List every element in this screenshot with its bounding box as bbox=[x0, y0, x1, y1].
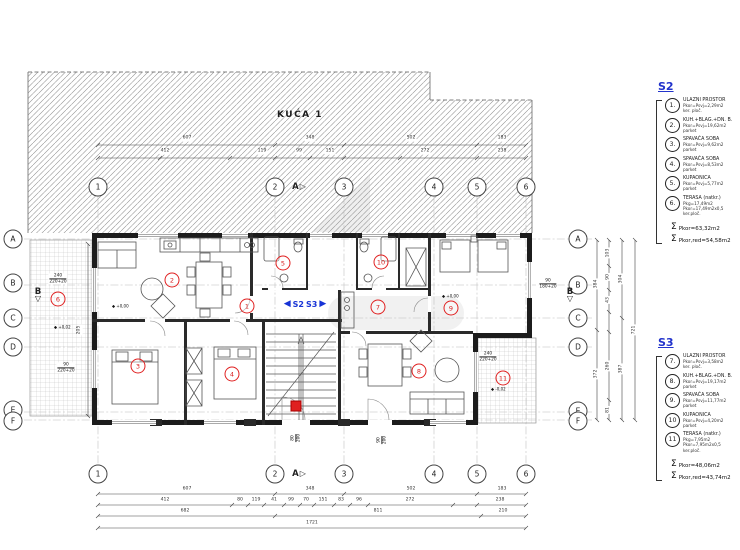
legend-item-number: 7. bbox=[665, 354, 680, 369]
legend-s3: S3 7. ULAZNI PROSTOR Pkor=Psvj=3,58m2 ke… bbox=[656, 336, 740, 484]
door-spec: 90 200 bbox=[376, 435, 387, 445]
legend-item-text: ULAZNI PROSTOR Pkor=Psvj=2,29m2 ker. plo… bbox=[683, 98, 725, 114]
legend-s3-body: 7. ULAZNI PROSTOR Pkor=Psvj=3,58m2 ker. … bbox=[656, 354, 740, 481]
dim-label: 384 bbox=[595, 279, 600, 290]
sigma-icon: Σ bbox=[671, 460, 677, 469]
room-bubble-5: 5 bbox=[276, 256, 291, 271]
dim-label: 607 bbox=[182, 137, 193, 142]
legend-item: 11 TERASA (natkr.) Pkg=7,95m2 Pkor=7,95m… bbox=[665, 432, 740, 453]
legend-room-floor: parket bbox=[683, 186, 723, 191]
legend-room-name: KUH.+BLAG.+DN. B. bbox=[683, 118, 732, 123]
dim-label: 43 bbox=[607, 296, 612, 304]
door-spec: 80 200 bbox=[290, 433, 301, 443]
dim-label: 119 bbox=[257, 150, 268, 155]
legend-sum-value: Pkor,red=43,74m2 bbox=[679, 475, 731, 481]
dim-label: 412 bbox=[160, 499, 171, 504]
legend-item-number: 10 bbox=[665, 413, 680, 428]
level-value: +0,02 bbox=[58, 325, 70, 330]
level-marker: ◆ +0,00 bbox=[112, 304, 129, 309]
legend-room-area: Pkor=Psvj=4,20m2 bbox=[683, 418, 723, 423]
section-arrow-icon: ▷ bbox=[300, 470, 306, 478]
level-marker: ◆ -0,02 bbox=[491, 387, 506, 392]
legend-item: 9. SPAVAĆA SOBA Pkor=Psvj=11,77m2 parket bbox=[665, 393, 740, 409]
legend-item-text: KUPAONICA Pkor=Psvj=4,20m2 parket bbox=[683, 413, 723, 429]
dim-label: 90 bbox=[607, 273, 612, 281]
legend-item: 2. KUH.+BLAG.+DN. B. Pkor=Psvj=19,62m2 p… bbox=[665, 118, 740, 134]
room-bubble-3: 3 bbox=[131, 359, 146, 374]
room-bubble-11: 11 bbox=[496, 371, 511, 386]
dim-label: 348 bbox=[305, 137, 316, 142]
dim-label: 412 bbox=[160, 150, 171, 155]
legend-item: 10 KUPAONICA Pkor=Psvj=4,20m2 parket bbox=[665, 413, 740, 429]
legend-item-text: KUH.+BLAG.+DN. B. Pkor=Psvj=19,17m2 park… bbox=[683, 374, 732, 390]
legend-sum-value: Pkor=63,32m2 bbox=[679, 226, 720, 232]
dim-label: 183 bbox=[497, 137, 508, 142]
legend-item-number: 5. bbox=[665, 176, 680, 191]
arrow-left-icon: ◀ bbox=[284, 299, 291, 309]
grid-col-4-bottom: 4 bbox=[425, 465, 444, 484]
grid-row-d-right: D bbox=[569, 338, 588, 357]
grid-row-f-left: F bbox=[4, 412, 23, 431]
sigma-icon: Σ bbox=[671, 223, 677, 232]
section-marker-b-left: B ▽ bbox=[35, 289, 41, 303]
dim-label: 103 bbox=[607, 248, 612, 259]
dim-label: 210 bbox=[498, 510, 509, 515]
grid-col-3-bottom: 3 bbox=[335, 465, 354, 484]
grid-col-2-top: 2 bbox=[266, 178, 285, 197]
dim-label: 238 bbox=[495, 499, 506, 504]
legend-item: 3. SPAVAĆA SOBA Pkor=Psvj=9,62m2 parket bbox=[665, 137, 740, 153]
sigma-icon: Σ bbox=[671, 472, 677, 481]
legend-item-text: KUH.+BLAG.+DN. B. Pkor=Psvj=19,62m2 park… bbox=[683, 118, 732, 134]
window-spec: 240 220+20 bbox=[48, 273, 67, 284]
legend-item: 1. ULAZNI PROSTOR Pkor=Psvj=2,29m2 ker. … bbox=[665, 98, 740, 114]
dim-label: 260 bbox=[607, 361, 612, 372]
legend-item-text: KUPAONICA Pkor=Psvj=5,77m2 parket bbox=[683, 176, 723, 192]
level-value: +0,00 bbox=[116, 304, 128, 309]
legend-room-floor: parket bbox=[683, 128, 732, 133]
dim-label: 41 bbox=[270, 499, 278, 504]
grid-col-3-top: 3 bbox=[335, 178, 354, 197]
dim-label: 81 bbox=[607, 406, 612, 414]
room-bubble-10: 10 bbox=[374, 255, 389, 270]
dim-label: 205 bbox=[78, 325, 83, 336]
legend-sum-row: Σ Pkor,red=43,74m2 bbox=[671, 472, 740, 481]
dim-label: 99 bbox=[295, 150, 303, 155]
level-value: -0,02 bbox=[495, 387, 505, 392]
legend-room-floor: parket bbox=[683, 384, 732, 389]
grid-row-b-left: B bbox=[4, 274, 23, 293]
grid-col-4-top: 4 bbox=[425, 178, 444, 197]
legend-bracket bbox=[656, 356, 662, 481]
legend-sum-row: Σ Pkor,red=54,58m2 bbox=[671, 235, 740, 244]
legend-s2-body: 1. ULAZNI PROSTOR Pkor=Psvj=2,29m2 ker. … bbox=[656, 98, 740, 244]
dim-label: 272 bbox=[420, 150, 431, 155]
grid-col-6-bottom: 6 bbox=[517, 465, 536, 484]
legend-room-floor: parket bbox=[683, 167, 723, 172]
section-a-label: A bbox=[292, 183, 299, 192]
dim-label: 70 bbox=[302, 499, 310, 504]
legend-bracket bbox=[656, 100, 662, 244]
building-label: KUĆA 1 bbox=[277, 110, 323, 120]
legend-item-text: SPAVAĆA SOBA Pkor=Psvj=8,53m2 parket bbox=[683, 157, 723, 173]
spec-height: 220+20 bbox=[479, 358, 496, 363]
legend-room-floor: ker. ploč. bbox=[683, 364, 725, 369]
sigma-icon: Σ bbox=[671, 235, 677, 244]
grid-col-1-top: 1 bbox=[89, 178, 108, 197]
spec-height: 180+20 bbox=[539, 285, 556, 290]
room-bubble-7: 7 bbox=[371, 300, 386, 315]
legend-item-number: 6. bbox=[665, 196, 680, 211]
grid-row-a-left: A bbox=[4, 230, 23, 249]
dim-label: 607 bbox=[182, 488, 193, 493]
legend-room-floor: Pkor=7,95m2x0,5 bbox=[683, 442, 721, 447]
dim-total-label: 721 bbox=[633, 325, 638, 336]
entrance-marker bbox=[291, 401, 302, 412]
floor-plan-linework bbox=[0, 0, 740, 550]
legend-room-area: Pkor=Psvj=8,53m2 bbox=[683, 162, 723, 167]
legend-sum-value: Pkor,red=54,58m2 bbox=[679, 238, 731, 244]
legend-item: 8. KUH.+BLAG.+DN. B. Pkor=Psvj=19,17m2 p… bbox=[665, 374, 740, 390]
legend-item: 4. SPAVAĆA SOBA Pkor=Psvj=8,53m2 parket bbox=[665, 157, 740, 173]
legend-room-floor: parket bbox=[683, 403, 726, 408]
grid-row-d-left: D bbox=[4, 338, 23, 357]
legend-s2-sums: Σ Pkor=63,32m2 Σ Pkor,red=54,58m2 bbox=[665, 223, 740, 244]
existing-building-hatch bbox=[28, 72, 532, 233]
legend-item-number: 3. bbox=[665, 137, 680, 152]
legend-item-number: 2. bbox=[665, 118, 680, 133]
section-marker-a-top: A ▷ bbox=[292, 183, 306, 192]
legend-s3-title: S3 bbox=[658, 336, 740, 349]
section-arrow-icon: ▷ bbox=[300, 183, 306, 191]
legend-item-text: TERASA (natkr.) Pkg=17,49m2 Pkor=17,49m2… bbox=[683, 196, 723, 217]
room-bubble-4: 4 bbox=[225, 367, 240, 382]
section-marker-b-right: B ▽ bbox=[567, 289, 573, 303]
spec-height: 200 bbox=[297, 434, 302, 442]
level-diamond-icon: ◆ bbox=[442, 294, 445, 299]
legend-room-area: Pkor=Psvj=19,62m2 bbox=[683, 123, 732, 128]
legend-item: 7. ULAZNI PROSTOR Pkor=Psvj=3,58m2 ker. … bbox=[665, 354, 740, 370]
dim-label: 348 bbox=[305, 488, 316, 493]
grid-col-2-bottom: 2 bbox=[266, 465, 285, 484]
legend-s2-title: S2 bbox=[658, 80, 740, 93]
room-bubble-6: 6 bbox=[51, 292, 66, 307]
window-spec: 240 220+20 bbox=[478, 351, 497, 362]
legend-sum-row: Σ Pkor=48,06m2 bbox=[671, 460, 740, 469]
legend-sum-value: Pkor=48,06m2 bbox=[679, 463, 720, 469]
legend-room-floor: parket bbox=[683, 423, 723, 428]
room-bubble-9: 9 bbox=[444, 301, 459, 316]
window-spec: 90 220+20 bbox=[56, 362, 75, 373]
grid-row-a-right: A bbox=[569, 230, 588, 249]
dim-label: 119 bbox=[251, 499, 262, 504]
legend-room-floor: parket bbox=[683, 147, 723, 152]
legend-item-number: 4. bbox=[665, 157, 680, 172]
legend-s3-items: 7. ULAZNI PROSTOR Pkor=Psvj=3,58m2 ker. … bbox=[665, 354, 740, 453]
room-bubble-2: 2 bbox=[165, 273, 180, 288]
spec-height: 220+20 bbox=[57, 369, 74, 374]
window-spec: 90 180+20 bbox=[538, 278, 557, 289]
level-value: +0,00 bbox=[446, 294, 458, 299]
dim-total-label: 1721 bbox=[305, 522, 319, 527]
section-a-label: A bbox=[292, 470, 299, 479]
legend-item-text: SPAVAĆA SOBA Pkor=Psvj=9,62m2 parket bbox=[683, 137, 723, 153]
dim-label: 682 bbox=[180, 510, 191, 515]
legend-item-text: SPAVAĆA SOBA Pkor=Psvj=11,77m2 parket bbox=[683, 393, 726, 409]
legend-room-floor: ker. ploč. bbox=[683, 108, 725, 113]
grid-col-6-top: 6 bbox=[517, 178, 536, 197]
grid-row-c-right: C bbox=[569, 309, 588, 328]
dim-label: 96 bbox=[355, 499, 363, 504]
legend-s2-items: 1. ULAZNI PROSTOR Pkor=Psvj=2,29m2 ker. … bbox=[665, 98, 740, 216]
arrow-right-icon: ▶ bbox=[319, 299, 326, 309]
dim-label: 502 bbox=[406, 488, 417, 493]
legend-sum-row: Σ Pkor=63,32m2 bbox=[671, 223, 740, 232]
dim-label: 811 bbox=[373, 510, 384, 515]
legend-item: 5. KUPAONICA Pkor=Psvj=5,77m2 parket bbox=[665, 176, 740, 192]
legend-item-number: 9. bbox=[665, 393, 680, 408]
legend-item-number: 11 bbox=[665, 432, 680, 447]
level-diamond-icon: ◆ bbox=[54, 325, 57, 330]
level-marker: ◆ +0,02 bbox=[54, 325, 71, 330]
grid-row-f-right: F bbox=[569, 412, 588, 431]
spec-height: 220+20 bbox=[49, 280, 66, 285]
level-marker: ◆ +0,00 bbox=[442, 294, 459, 299]
level-diamond-icon: ◆ bbox=[491, 387, 494, 392]
legend-item-number: 8. bbox=[665, 374, 680, 389]
section-marker-a-bottom: A ▷ bbox=[292, 470, 306, 479]
spec-height: 200 bbox=[383, 436, 388, 444]
grid-row-c-left: C bbox=[4, 309, 23, 328]
dim-label: 272 bbox=[405, 499, 416, 504]
window-glazing bbox=[93, 235, 530, 424]
legend-room-extra: ker.ploč. bbox=[683, 211, 723, 216]
section-arrow-icon: ▽ bbox=[35, 296, 41, 303]
dim-label: 372 bbox=[595, 369, 600, 380]
dim-label: 151 bbox=[318, 499, 329, 504]
grid-col-1-bottom: 1 bbox=[89, 465, 108, 484]
dim-label: 99 bbox=[287, 499, 295, 504]
dim-label: 151 bbox=[325, 150, 336, 155]
legend-item-text: ULAZNI PROSTOR Pkor=Psvj=3,58m2 ker. plo… bbox=[683, 354, 725, 370]
room-bubble-1: 1 bbox=[240, 299, 255, 314]
legend-room-extra: ker.ploč. bbox=[683, 448, 721, 453]
dim-label: 183 bbox=[497, 488, 508, 493]
divider-s2-label: S2 bbox=[293, 300, 304, 309]
legend-room-name: SPAVAĆA SOBA bbox=[683, 157, 723, 162]
dim-label: 80 bbox=[236, 499, 244, 504]
dim-label: 304 bbox=[620, 274, 625, 285]
drawing-canvas: KUĆA 1 1 2 3 4 5 6 1 2 3 4 5 6 A B C D E… bbox=[0, 0, 740, 550]
room-bubble-8: 8 bbox=[412, 364, 427, 379]
legend-room-name: KUH.+BLAG.+DN. B. bbox=[683, 374, 732, 379]
apartment-divider: ◀ S2 S3 ▶ bbox=[284, 299, 327, 309]
legend-item: 6. TERASA (natkr.) Pkg=17,49m2 Pkor=17,4… bbox=[665, 196, 740, 217]
level-diamond-icon: ◆ bbox=[112, 304, 115, 309]
grid-col-5-top: 5 bbox=[468, 178, 487, 197]
dim-label: 502 bbox=[406, 137, 417, 142]
legend-room-name: TERASA (natkr.) bbox=[683, 196, 723, 201]
legend-item-number: 1. bbox=[665, 98, 680, 113]
legend-item-text: TERASA (natkr.) Pkg=7,95m2 Pkor=7,95m2x0… bbox=[683, 432, 721, 453]
grid-col-5-bottom: 5 bbox=[468, 465, 487, 484]
section-arrow-icon: ▽ bbox=[567, 296, 573, 303]
divider-s3-label: S3 bbox=[306, 300, 317, 309]
legend-s2: S2 1. ULAZNI PROSTOR Pkor=Psvj=2,29m2 ke… bbox=[656, 80, 740, 247]
dim-label: 387 bbox=[620, 364, 625, 375]
legend-s3-sums: Σ Pkor=48,06m2 Σ Pkor,red=43,74m2 bbox=[665, 460, 740, 481]
dim-label: 238 bbox=[497, 150, 508, 155]
legend-room-area: Pkor=Psvj=19,17m2 bbox=[683, 379, 732, 384]
dim-label: 83 bbox=[337, 499, 345, 504]
